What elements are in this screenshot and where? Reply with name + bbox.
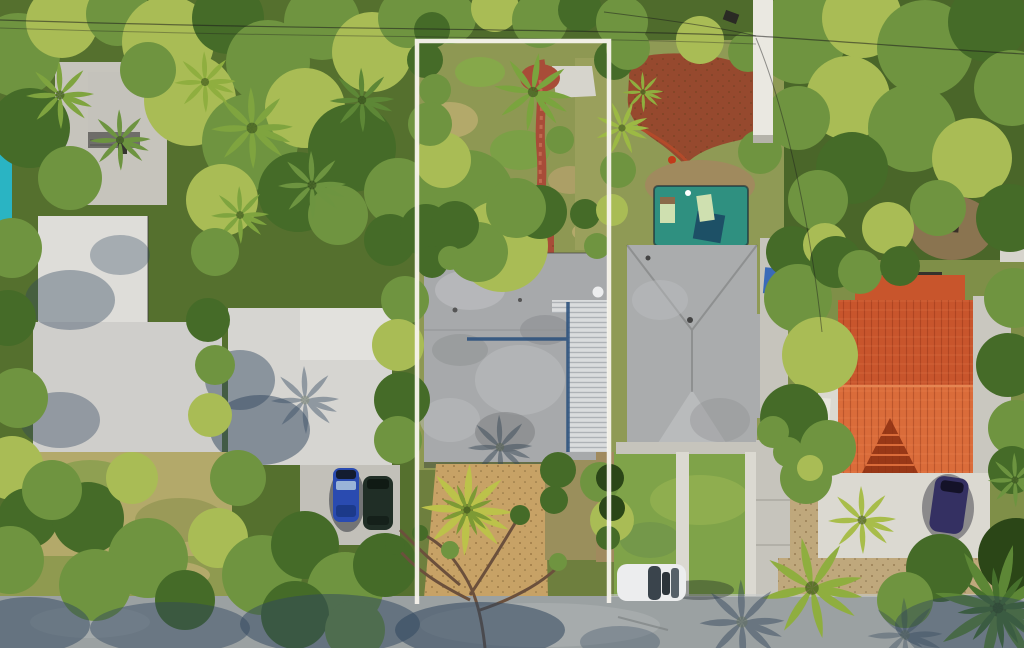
satellite-dish <box>593 287 604 298</box>
walkway-strip <box>745 452 757 598</box>
roof-vent <box>453 308 458 313</box>
aerial-photo <box>0 0 1024 648</box>
sunroof <box>662 572 670 595</box>
utility-pole-strip <box>753 0 773 142</box>
roof-vent <box>687 317 693 323</box>
